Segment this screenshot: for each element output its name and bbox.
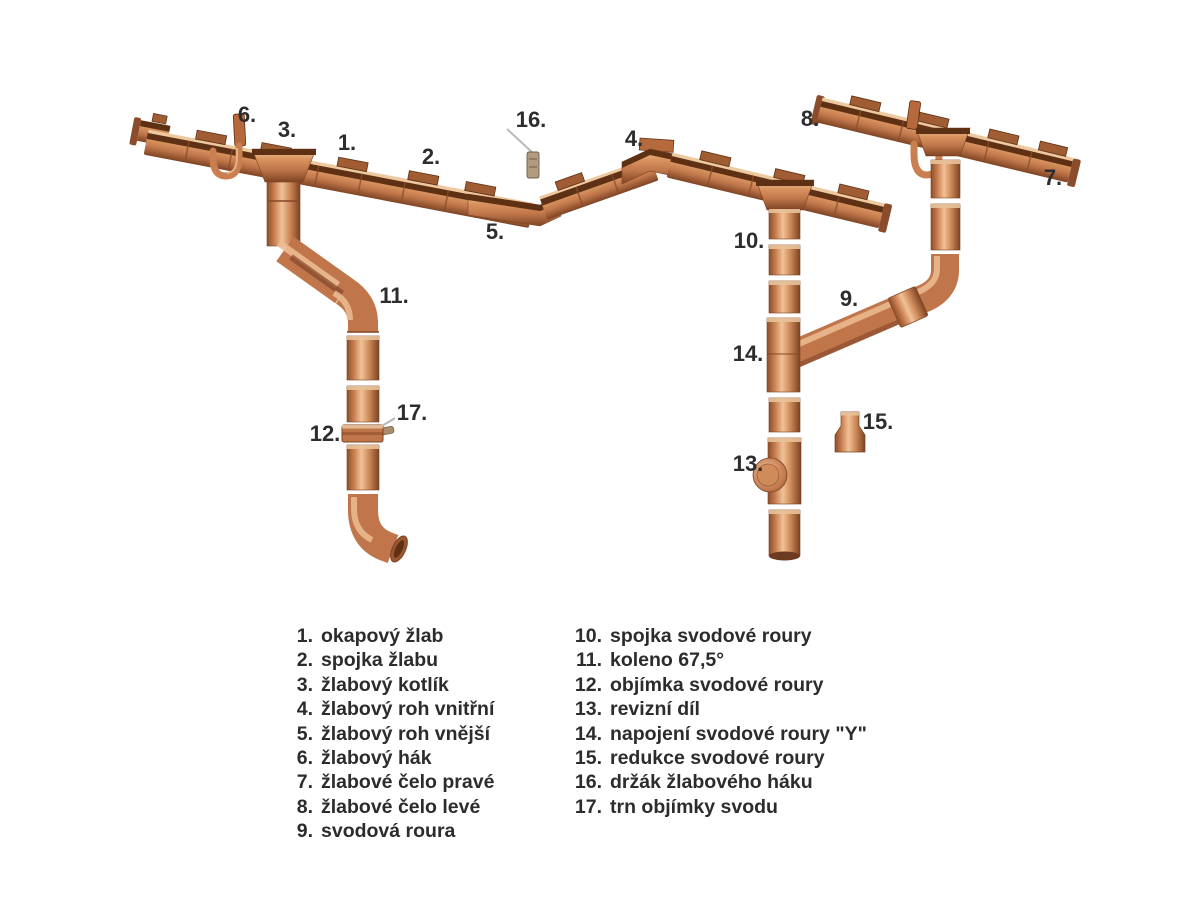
legend-label: objímka svodové roury [610,673,823,697]
downpipe-upper-right [931,160,960,250]
callout-15: 15. [863,409,894,434]
legend-num: 2. [277,648,313,672]
legend-item: 3.žlabový kotlík [277,673,494,697]
legend-item: 16.držák žlabového háku [566,770,867,794]
legend-label: žlabové čelo pravé [321,770,494,794]
legend-num: 9. [277,819,313,843]
legend-item: 15.redukce svodové roury [566,746,867,770]
legend-label: napojení svodové roury "Y" [610,722,867,746]
legend-item: 6.žlabový hák [277,746,494,770]
pipe-segment [347,336,379,380]
outlet-neck-pipe [267,182,300,246]
legend-right-column: 10.spojka svodové roury 11.koleno 67,5° … [566,624,867,819]
legend-num: 12. [566,673,602,697]
callout-17: 17. [397,400,428,425]
callout-5: 5. [486,219,504,244]
callout-7: 7. [1044,165,1062,190]
callout-10: 10. [734,228,765,253]
y-junction-14 [767,318,800,392]
legend-label: koleno 67,5° [610,648,724,672]
legend-num: 16. [566,770,602,794]
legend-num: 14. [566,722,602,746]
legend-label: trn objímky svodu [610,795,778,819]
legend-item: 12.objímka svodové roury [566,673,867,697]
legend-item: 11.koleno 67,5° [566,648,867,672]
legend-item: 2.spojka žlabu [277,648,494,672]
legend-label: žlabové čelo levé [321,795,480,819]
legend-item: 5.žlabový roh vnější [277,722,494,746]
hook-holder-16 [527,152,539,178]
legend-item: 10.spojka svodové roury [566,624,867,648]
legend-num: 5. [277,722,313,746]
legend-num: 10. [566,624,602,648]
legend-num: 15. [566,746,602,770]
outlet-elbow-bottom [354,494,411,564]
callout-16: 16. [516,107,547,132]
callout-12: 12. [310,421,341,446]
callout-4: 4. [625,126,643,151]
legend-num: 3. [277,673,313,697]
legend-item: 7.žlabové čelo pravé [277,770,494,794]
legend-label: žlabový hák [321,746,432,770]
pipe-segment [347,386,379,422]
callout-2: 2. [422,144,440,169]
callout-3: 3. [278,117,296,142]
legend-num: 1. [277,624,313,648]
legend-item: 4.žlabový roh vnitřní [277,697,494,721]
legend-item: 13.revizní díl [566,697,867,721]
legend-label: žlabový roh vnitřní [321,697,494,721]
legend-item: 1.okapový žlab [277,624,494,648]
legend-item: 17.trn objímky svodu [566,795,867,819]
callout-1: 1. [338,130,356,155]
pipe-clamp-12 [342,425,383,442]
callout-14: 14. [733,341,764,366]
legend-label: svodová roura [321,819,455,843]
gutter-outlet-3 [252,149,316,246]
downpipe-diagonal-9 [790,254,945,367]
elbow-11 [279,243,379,332]
legend-label: okapový žlab [321,624,443,648]
legend-num: 17. [566,795,602,819]
legend-num: 4. [277,697,313,721]
legend-num: 13. [566,697,602,721]
callout-9: 9. [840,286,858,311]
legend-num: 11. [566,648,602,672]
leader-line-16 [507,129,534,154]
callout-13: 13. [733,451,764,476]
legend-num: 6. [277,746,313,770]
gutter-system-diagram: 1. 2. 3. 4. 5. 6. 7. 8. 9. 10. 11. 12. 1… [0,0,1194,900]
legend-label: revizní díl [610,697,700,721]
downpipe-left [342,336,411,564]
callout-6: 6. [238,102,256,127]
legend-label: žlabový roh vnější [321,722,490,746]
downpipe-lower-center [753,398,801,561]
legend-label: spojka žlabu [321,648,438,672]
legend-label: redukce svodové roury [610,746,825,770]
callout-8: 8. [801,106,819,131]
pipe-segment [347,445,379,490]
legend-label: žlabový kotlík [321,673,449,697]
legend-item: 9.svodová roura [277,819,494,843]
pipe-coupling-10 [769,209,800,313]
legend-item: 8.žlabové čelo levé [277,795,494,819]
legend-num: 7. [277,770,313,794]
legend-label: spojka svodové roury [610,624,812,648]
legend-left-column: 1.okapový žlab 2.spojka žlabu 3.žlabový … [277,624,494,844]
legend-label: držák žlabového háku [610,770,813,794]
reducer-15 [835,412,865,452]
callout-11: 11. [379,283,408,308]
legend-item: 14.napojení svodové roury "Y" [566,722,867,746]
legend-num: 8. [277,795,313,819]
